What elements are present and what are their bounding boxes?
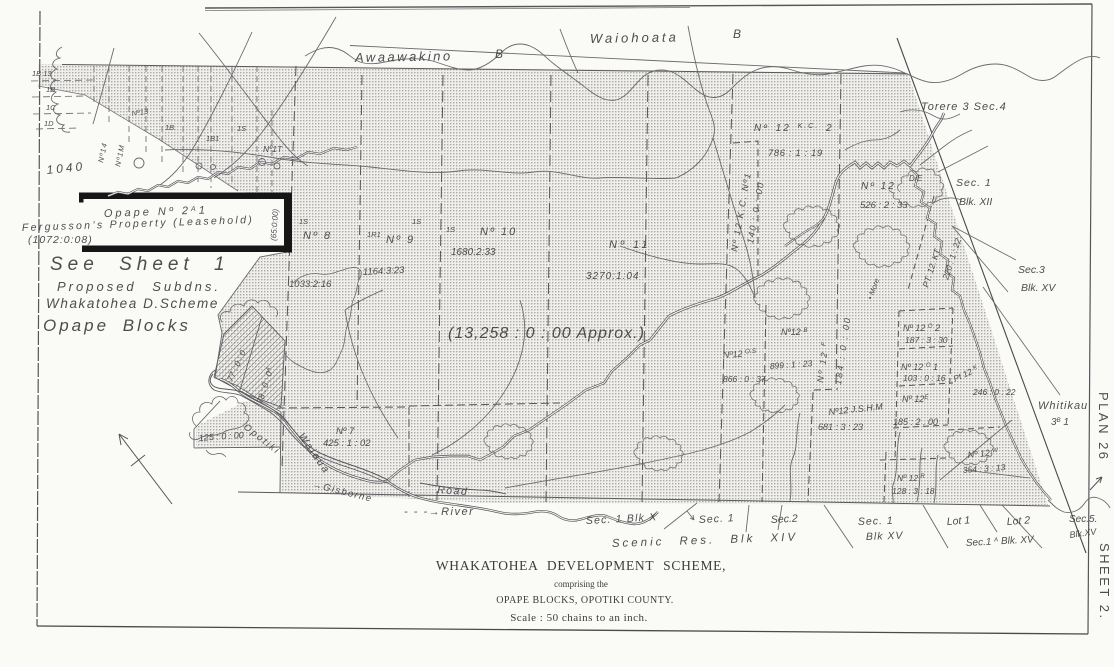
svg-text:681 : 3 : 23: 681 : 3 : 23 [818,422,863,432]
svg-text:See Sheet 1: See Sheet 1 [50,254,230,275]
svg-text:1S: 1S [412,217,421,226]
svg-text:Blk. XII: Blk. XII [959,196,992,208]
svg-text:Nº 12: Nº 12 [861,181,896,192]
svg-text:Nº 8: Nº 8 [303,230,332,242]
svg-text:786 : 1 : 19: 786 : 1 : 19 [768,148,823,159]
svg-text:1D: 1D [44,119,54,128]
svg-text:1033:2:16: 1033:2:16 [289,279,332,290]
svg-text:Blk XV: Blk XV [866,530,904,543]
svg-text:Waiohoata: Waiohoata [590,29,679,46]
svg-text:Nº 10: Nº 10 [480,226,517,238]
svg-text:Whitikau: Whitikau [1038,400,1088,412]
svg-text:Lot 2: Lot 2 [1006,514,1030,528]
svg-text:B: B [733,27,741,41]
svg-text:3B 1: 3B 1 [1051,417,1069,428]
svg-text:WHAKATOHEA DEVELOPMENT SCHEM: WHAKATOHEA DEVELOPMENT SCHEME, [436,558,726,573]
svg-text:103 : 0 : 16: 103 : 0 : 16 [903,373,946,383]
svg-text:1164:3:23: 1164:3:23 [363,265,406,278]
svg-text:187 : 3 : 30: 187 : 3 : 30 [905,335,948,345]
svg-text:425 : 1 : 02: 425 : 1 : 02 [323,438,371,449]
svg-text:1680:2:33: 1680:2:33 [451,247,496,258]
svg-text:SHEET 2.: SHEET 2. [1097,543,1112,621]
svg-text:1B: 1B [46,85,55,94]
svg-text:PLAN 26: PLAN 26 [1096,392,1111,462]
svg-text:Nº 7: Nº 7 [336,426,355,437]
svg-text:D/E: D/E [909,174,923,183]
svg-text:1S: 1S [299,217,308,226]
svg-text:- - -→River: - - -→River [404,506,474,518]
svg-text:Awaawakino: Awaawakino [354,48,453,65]
svg-text:Sec.2: Sec.2 [771,513,799,526]
svg-text:185 : 2 . 00: 185 : 2 . 00 [893,417,938,427]
svg-text:Proposed Subdns.: Proposed Subdns. [57,279,221,294]
svg-text:(13,258 : 0 : 00 Approx.): (13,258 : 0 : 00 Approx.) [448,325,645,342]
svg-text:Blk. XV: Blk. XV [1021,282,1056,294]
svg-text:Nº1T: Nº1T [263,144,283,154]
svg-text:Sec. 1: Sec. 1 [699,512,735,526]
svg-text:Opape Blocks: Opape Blocks [43,316,191,335]
svg-text:Whakatohea D.Scheme: Whakatohea D.Scheme [46,296,219,311]
svg-text:866 : 0 : 37: 866 : 0 : 37 [723,374,766,384]
svg-text:Sec. 1: Sec. 1 [956,177,992,189]
svg-text:Sec. 1: Sec. 1 [858,515,894,528]
svg-text:Road: Road [437,484,469,498]
svg-text:Nº 12 K.C. 2: Nº 12 K.C. 2 [754,123,834,134]
svg-text:Sec.3: Sec.3 [1018,264,1045,276]
svg-text:OPAPE BLOCKS, OPOTIKI COUNTY.: OPAPE BLOCKS, OPOTIKI COUNTY. [496,595,674,606]
svg-text:Sec.5.: Sec.5. [1069,514,1097,525]
svg-text:(1072:0:08): (1072:0:08) [28,234,93,246]
svg-text:Torere 3 Sec.4: Torere 3 Sec.4 [921,101,1007,113]
svg-text:1S: 1S [237,124,246,133]
svg-text:3270:1:04: 3270:1:04 [586,271,640,282]
svg-text:Nº 12 O 1: Nº 12 O 1 [901,362,938,372]
svg-text:Nº 11: Nº 11 [609,239,650,251]
svg-text:Nº 9: Nº 9 [386,234,415,246]
svg-text:1B1: 1B1 [206,134,219,143]
svg-text:246 : 0 : 22: 246 : 0 : 22 [972,387,1016,397]
svg-text:1C: 1C [46,103,56,112]
svg-text:1B.: 1B. [165,123,176,132]
svg-text:1R1: 1R1 [367,230,381,239]
svg-text:Scale : 50 chains to an inch.: Scale : 50 chains to an inch. [510,612,648,624]
svg-text:128 : 3 : 18: 128 : 3 : 18 [892,486,935,496]
svg-text:1S: 1S [446,225,455,234]
svg-text:526 : 2 : 33: 526 : 2 : 33 [860,200,908,211]
svg-text:Nº 12 O 2: Nº 12 O 2 [903,323,940,333]
svg-text:1B 13: 1B 13 [32,69,52,78]
svg-text:Lot 1: Lot 1 [946,514,970,528]
svg-text:B: B [495,47,503,61]
svg-text:comprising the: comprising the [554,579,608,589]
